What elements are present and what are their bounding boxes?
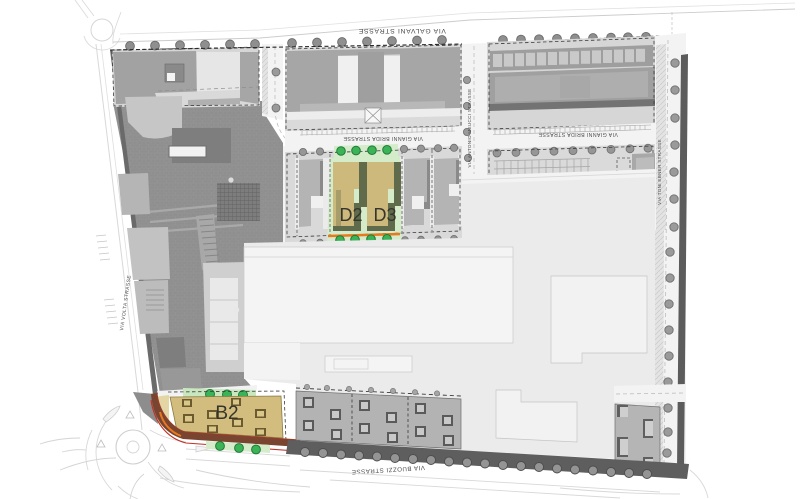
svg-text:B2: B2 (215, 403, 238, 424)
svg-text:VIA GIANNI BRIDA STRASSE: VIA GIANNI BRIDA STRASSE (343, 135, 423, 141)
svg-text:VIA TONI EBNER STRASSE: VIA TONI EBNER STRASSE (657, 139, 662, 205)
svg-text:D2: D2 (339, 205, 362, 225)
svg-text:VIA GIANNI BRIDA STRASSE: VIA GIANNI BRIDA STRASSE (538, 131, 618, 137)
svg-text:VIA GALVANI STRASSE: VIA GALVANI STRASSE (358, 27, 446, 34)
svg-text:VIA ANTONIO MEUCCI STRASSE: VIA ANTONIO MEUCCI STRASSE (467, 89, 472, 168)
svg-text:D3: D3 (373, 205, 396, 225)
